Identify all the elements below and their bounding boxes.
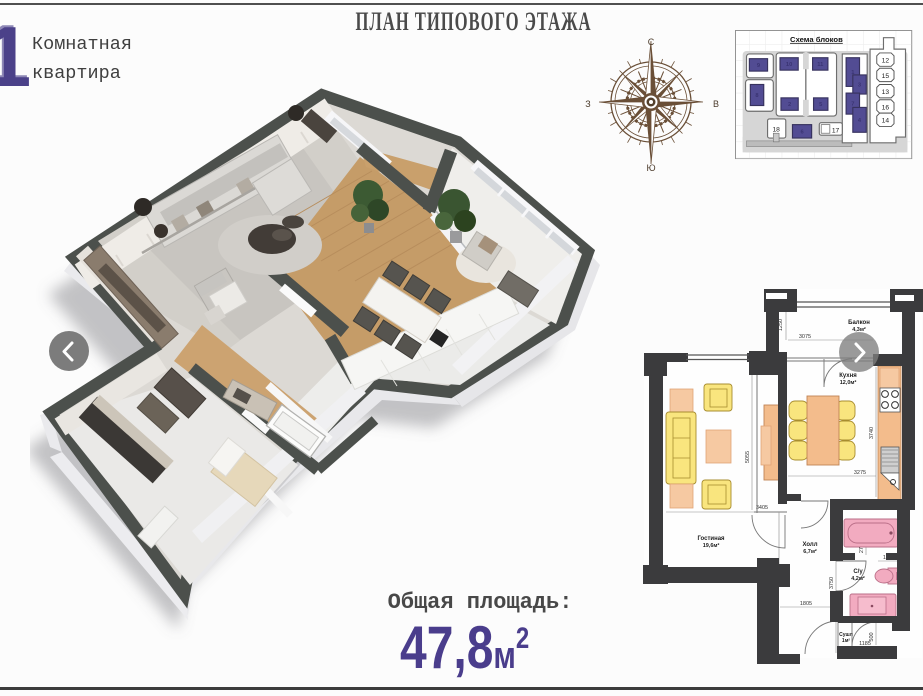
- svg-text:18: 18: [772, 126, 780, 133]
- svg-text:9: 9: [757, 63, 760, 69]
- svg-text:7: 7: [851, 102, 854, 108]
- svg-text:17: 17: [832, 127, 840, 134]
- svg-text:6,7м²: 6,7м²: [803, 548, 817, 555]
- svg-text:12: 12: [882, 58, 890, 65]
- svg-text:1805: 1805: [800, 601, 812, 607]
- svg-text:Гостиная: Гостиная: [697, 536, 725, 542]
- svg-text:19,6м²: 19,6м²: [703, 542, 720, 549]
- svg-text:Ю: Ю: [646, 163, 655, 173]
- svg-text:В: В: [713, 99, 719, 109]
- svg-text:4,2м²: 4,2м²: [851, 575, 865, 582]
- svg-text:16: 16: [882, 104, 890, 111]
- svg-text:500: 500: [869, 632, 875, 641]
- svg-text:12,0м²: 12,0м²: [840, 379, 857, 386]
- svg-text:10: 10: [786, 62, 792, 68]
- svg-text:2: 2: [788, 102, 791, 108]
- svg-text:11: 11: [817, 62, 824, 68]
- svg-text:С/у: С/у: [853, 569, 863, 575]
- svg-text:Балкон: Балкон: [848, 320, 870, 326]
- svg-text:С: С: [648, 37, 655, 47]
- svg-text:6: 6: [800, 129, 803, 135]
- svg-text:3740: 3740: [869, 427, 875, 439]
- svg-text:3405: 3405: [756, 505, 768, 511]
- svg-text:14: 14: [882, 118, 890, 125]
- svg-text:Кухня: Кухня: [839, 373, 857, 379]
- svg-text:1м²: 1м²: [842, 638, 850, 644]
- svg-text:5055: 5055: [745, 451, 751, 463]
- svg-text:3: 3: [858, 83, 861, 89]
- svg-text:3750: 3750: [829, 577, 835, 589]
- svg-text:13: 13: [882, 89, 890, 96]
- svg-text:3075: 3075: [799, 334, 811, 340]
- svg-text:Схема блоков: Схема блоков: [790, 35, 843, 44]
- svg-text:3275: 3275: [854, 470, 866, 476]
- svg-text:Холл: Холл: [802, 542, 817, 548]
- svg-text:15: 15: [882, 73, 890, 80]
